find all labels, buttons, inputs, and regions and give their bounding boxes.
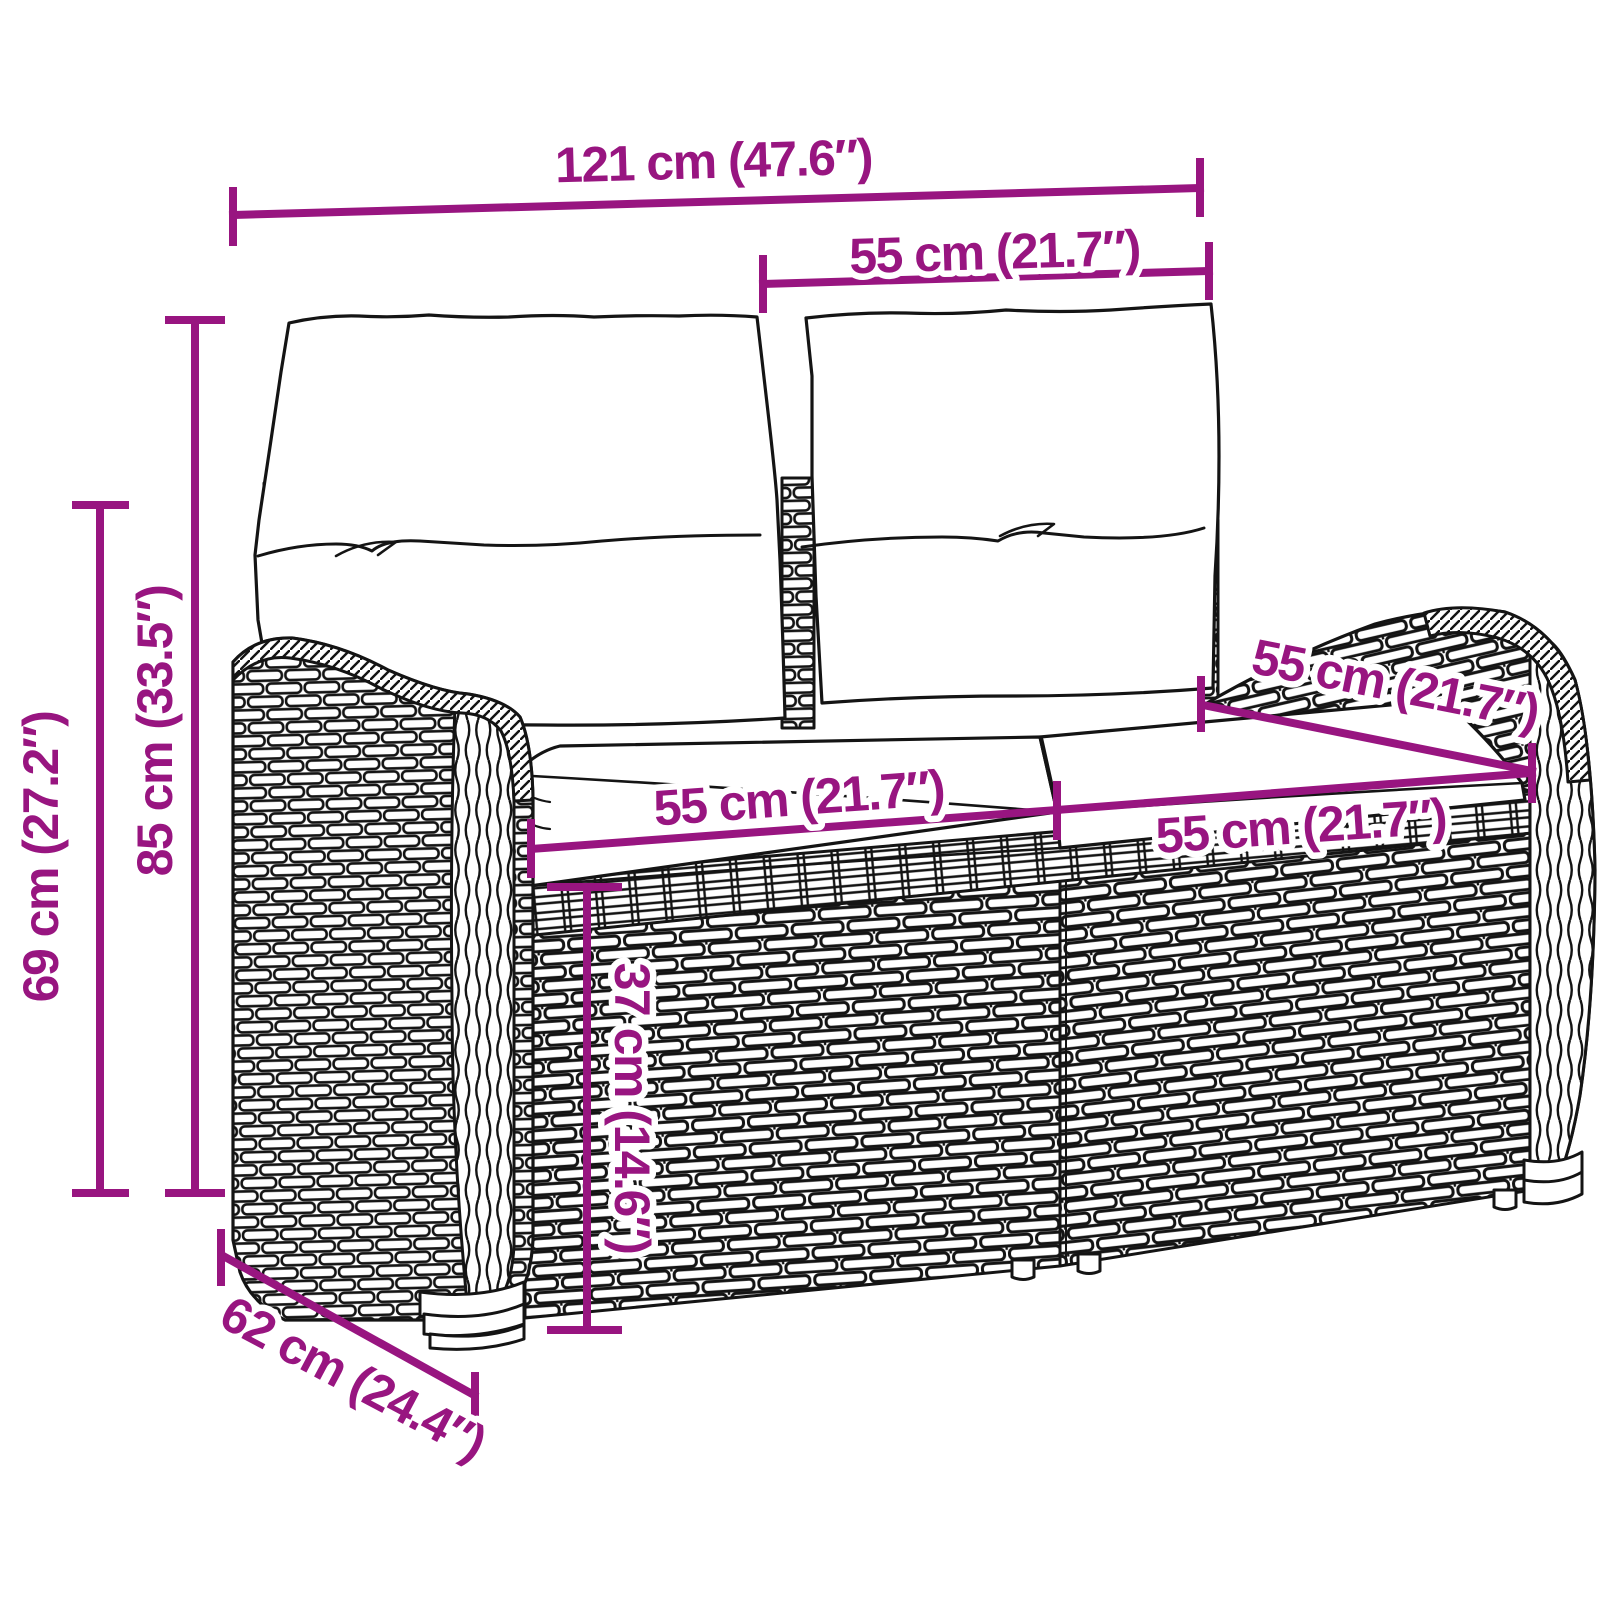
svg-text:37 cm (14.6″): 37 cm (14.6″) xyxy=(604,963,660,1254)
svg-text:55 cm (21.7″): 55 cm (21.7″) xyxy=(848,220,1140,285)
svg-text:69 cm (27.2″): 69 cm (27.2″) xyxy=(13,712,69,1003)
svg-text:121 cm (47.6″): 121 cm (47.6″) xyxy=(554,129,872,194)
svg-text:85 cm (33.5″): 85 cm (33.5″) xyxy=(127,586,183,877)
